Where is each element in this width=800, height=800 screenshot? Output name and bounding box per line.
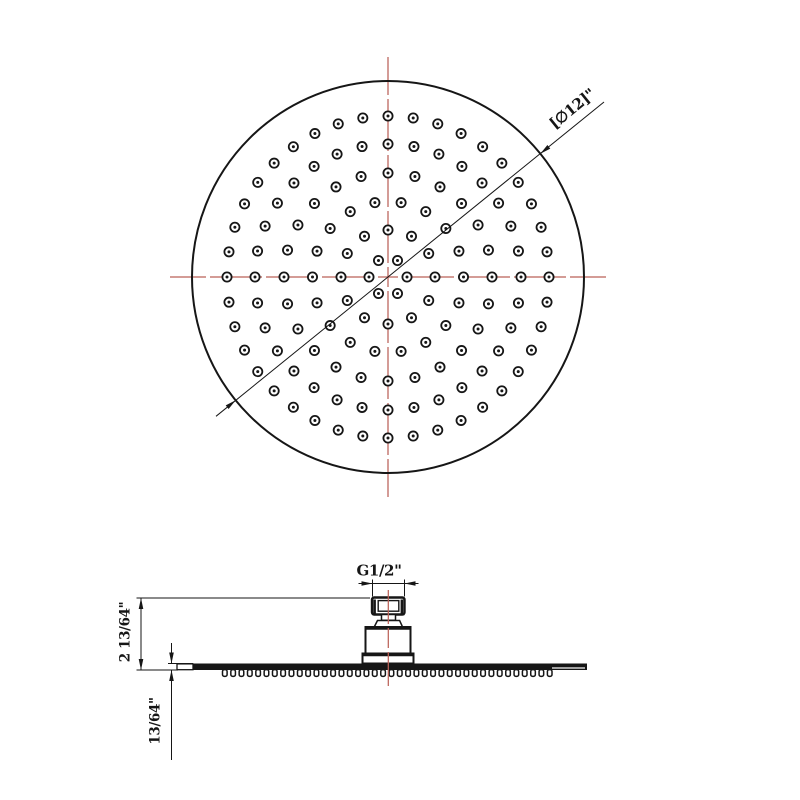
nozzle-tooth (289, 670, 294, 677)
nozzle-tooth (372, 670, 377, 677)
nozzle-hole (273, 346, 282, 355)
nozzle-hole (293, 220, 302, 229)
nozzle-hole (283, 299, 292, 308)
nozzle-hole (407, 313, 416, 322)
nozzle-tooth (247, 670, 252, 677)
nozzle-hole (383, 225, 392, 234)
nozzle-tooth (431, 670, 436, 677)
nozzle-hole (383, 433, 392, 442)
nozzle-hole (434, 150, 443, 159)
nozzle-hole (240, 199, 249, 208)
nozzle-hole (383, 168, 392, 177)
nozzle-hole (433, 119, 442, 128)
height-arrow (139, 659, 144, 670)
height-label: 2 13/64" (118, 602, 134, 662)
nozzle-hole (537, 322, 546, 331)
nozzle-hole (430, 272, 439, 281)
nozzle-tooth (356, 670, 361, 677)
nozzle-hole (424, 249, 433, 258)
thread-dimension: G1/2" (357, 562, 419, 597)
nozzle-hole (454, 298, 463, 307)
height-arrow (139, 598, 144, 609)
nozzle-hole (409, 431, 418, 440)
nozzle-hole (331, 182, 340, 191)
nozzle-hole (310, 162, 319, 171)
nozzle-hole (358, 113, 367, 122)
nozzle-hole (360, 313, 369, 322)
nozzle-hole (393, 289, 402, 298)
nozzle-tooth (297, 670, 302, 677)
nozzle-hole (421, 207, 430, 216)
plate-end-cap (177, 664, 193, 670)
nozzle-hole (343, 249, 352, 258)
nozzle-hole (360, 232, 369, 241)
nozzle-tooth (472, 670, 477, 677)
thickness-dimension: 13/64" (148, 643, 194, 760)
nozzle-tooth (489, 670, 494, 677)
nozzle-hole (383, 139, 392, 148)
nozzle-hole (310, 199, 319, 208)
nozzle-hole (374, 289, 383, 298)
thread-arrow (405, 581, 416, 586)
nozzle-tooth (414, 670, 419, 677)
nozzle-hole (410, 373, 419, 382)
nozzle-hole (456, 416, 465, 425)
nozzle-tooth (464, 670, 469, 677)
nozzle-hole (484, 245, 493, 254)
nozzle-hole (356, 373, 365, 382)
thickness-arrow (169, 670, 174, 681)
nozzle-tooth (364, 670, 369, 677)
nozzle-hole (374, 256, 383, 265)
nozzle-hole (410, 172, 419, 181)
nozzle-hole (261, 222, 270, 231)
nozzle-hole (494, 199, 503, 208)
nozzle-hole (253, 367, 262, 376)
nozzle-hole (473, 324, 482, 333)
nozzle-hole (279, 272, 288, 281)
nozzle-tooth (314, 670, 319, 677)
nozzle-hole (357, 142, 366, 151)
nozzle-tooth (514, 670, 519, 677)
nozzle-hole (310, 129, 319, 138)
nozzle-hole (402, 272, 411, 281)
nozzle-hole (293, 324, 302, 333)
nozzle-hole (383, 376, 392, 385)
nozzle-hole (393, 256, 402, 265)
nozzle-hole (283, 245, 292, 254)
nozzle-hole (253, 298, 262, 307)
nozzle-hole (289, 178, 298, 187)
nozzle-hole (346, 338, 355, 347)
nozzle-hole (397, 198, 406, 207)
nozzle-hole (331, 362, 340, 371)
nozzle-hole (326, 321, 335, 330)
nozzle-hole (397, 347, 406, 356)
nozzle-hole (542, 247, 551, 256)
nozzle-tooth (381, 670, 386, 677)
nozzle-hole (370, 198, 379, 207)
side-view: G1/2" 2 13/64" 13/64" (118, 562, 588, 761)
nozzle-tooth (239, 670, 244, 677)
thickness-arrow (169, 653, 174, 664)
drawing-sheet: [∅12]" G1/2" 2 13/64" 13/64" (0, 0, 800, 800)
nozzle-hole (312, 298, 321, 307)
nozzle-hole (497, 159, 506, 168)
nozzle-hole (441, 321, 450, 330)
nozzle-hole (478, 142, 487, 151)
nozzle-hole (364, 272, 373, 281)
nozzle-hole (494, 346, 503, 355)
nozzle-hole (289, 403, 298, 412)
nozzle-hole (343, 296, 352, 305)
nozzle-hole (261, 323, 270, 332)
nozzle-hole (356, 172, 365, 181)
nozzle-tooth (339, 670, 344, 677)
nozzle-tooth (522, 670, 527, 677)
nozzle-hole (240, 345, 249, 354)
plate-bottom-highlight (552, 667, 585, 668)
nozzle-hole (333, 150, 342, 159)
nozzle-hole (514, 298, 523, 307)
nozzle-hole (270, 159, 279, 168)
nozzle-hole (409, 403, 418, 412)
nozzle-hole (334, 119, 343, 128)
nozzle-hole (487, 272, 496, 281)
nozzle-tooth (256, 670, 261, 677)
nozzle-hole (516, 272, 525, 281)
nozzle-hole (459, 272, 468, 281)
nozzle-hole (433, 426, 442, 435)
nozzle-hole (370, 347, 379, 356)
nozzle-tooth (331, 670, 336, 677)
nozzle-hole (407, 232, 416, 241)
nozzle-hole (289, 366, 298, 375)
nozzle-tooth (481, 670, 486, 677)
nozzle-hole (224, 298, 233, 307)
nozzle-hole (308, 272, 317, 281)
nozzle-hole (421, 338, 430, 347)
nozzle-hole (537, 223, 546, 232)
top-view: [∅12]" (170, 57, 606, 497)
nozzle-hole (527, 345, 536, 354)
shower-plate-profile (177, 664, 587, 677)
nozzle-hole (310, 416, 319, 425)
nozzle-hole (273, 199, 282, 208)
nozzle-tooth (456, 670, 461, 677)
nozzle-hole (310, 383, 319, 392)
nozzle-hole (542, 298, 551, 307)
diameter-label: [∅12]" (546, 85, 599, 133)
nozzle-hole (477, 178, 486, 187)
nozzle-hole (253, 246, 262, 255)
nozzle-hole (506, 222, 515, 231)
nozzle-hole (456, 129, 465, 138)
nozzle-hole (312, 247, 321, 256)
nozzle-hole (514, 178, 523, 187)
nozzle-hole (544, 272, 553, 281)
nozzle-hole (224, 247, 233, 256)
thickness-label: 13/64" (148, 697, 164, 744)
nozzle-hole (358, 431, 367, 440)
nozzle-hole (484, 299, 493, 308)
height-dimension: 2 13/64" (118, 598, 371, 670)
nozzle-hole (514, 367, 523, 376)
nozzle-hole (457, 346, 466, 355)
nozzle-tooth (539, 670, 544, 677)
nozzle-hole (270, 386, 279, 395)
nozzle-tooth (397, 670, 402, 677)
nozzle-tooth (506, 670, 511, 677)
nozzle-hole (473, 220, 482, 229)
nozzle-hole (383, 405, 392, 414)
nozzle-hole (334, 426, 343, 435)
nozzle-tooth (322, 670, 327, 677)
nozzle-hole (457, 199, 466, 208)
nozzle-tooth (281, 670, 286, 677)
nozzle-hole (434, 395, 443, 404)
nozzle-hole (336, 272, 345, 281)
nozzle-tooth (422, 670, 427, 677)
nozzle-tooth (272, 670, 277, 677)
nozzle-hole (230, 322, 239, 331)
nozzle-tooth (223, 670, 228, 677)
nozzle-hole (506, 323, 515, 332)
nozzle-hole (424, 296, 433, 305)
nozzle-tooth (347, 670, 352, 677)
nozzle-tooth (264, 670, 269, 677)
nozzle-hole (383, 111, 392, 120)
nozzle-hole (497, 386, 506, 395)
nozzle-hole (477, 366, 486, 375)
nozzle-hole (478, 403, 487, 412)
nozzle-hole (346, 207, 355, 216)
thread-label: G1/2" (357, 562, 402, 580)
nozzle-hole (250, 272, 259, 281)
nozzle-tooth (439, 670, 444, 677)
nozzle-hole (230, 223, 239, 232)
nozzle-hole (527, 199, 536, 208)
nozzle-hole (514, 246, 523, 255)
nozzle-hole (435, 362, 444, 371)
nozzle-hole (357, 403, 366, 412)
nozzle-hole (253, 178, 262, 187)
dimension-arrowheads (139, 145, 551, 681)
nozzle-hole (222, 272, 231, 281)
spray-nozzles (223, 670, 553, 677)
nozzle-hole (454, 247, 463, 256)
nozzle-tooth (231, 670, 236, 677)
nozzle-hole (289, 142, 298, 151)
nozzle-tooth (306, 670, 311, 677)
nozzle-hole (333, 395, 342, 404)
technical-drawing: [∅12]" G1/2" 2 13/64" 13/64" (0, 0, 800, 800)
nozzle-tooth (406, 670, 411, 677)
nozzle-tooth (447, 670, 452, 677)
nozzle-hole (326, 224, 335, 233)
thread-arrow (362, 581, 373, 586)
nozzle-hole (457, 162, 466, 171)
nozzle-tooth (547, 670, 552, 677)
nozzle-hole (383, 319, 392, 328)
nozzle-hole (435, 182, 444, 191)
nozzle-tooth (389, 670, 394, 677)
nozzle-hole (409, 113, 418, 122)
nozzle-hole (457, 383, 466, 392)
nozzle-tooth (497, 670, 502, 677)
nozzle-tooth (531, 670, 536, 677)
nozzle-hole (441, 224, 450, 233)
nozzle-hole (310, 346, 319, 355)
nozzle-hole (409, 142, 418, 151)
